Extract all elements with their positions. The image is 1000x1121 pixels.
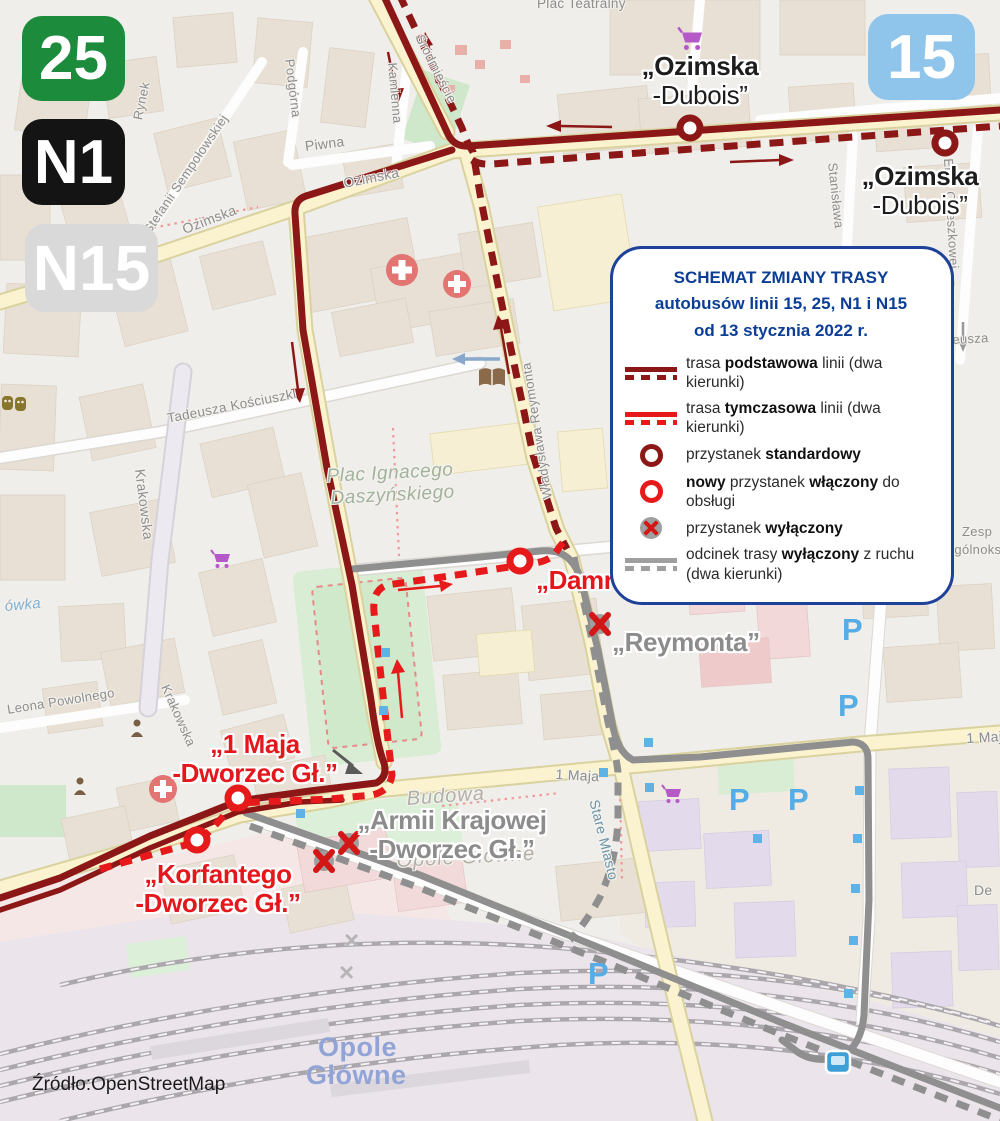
street-label: Główne xyxy=(306,1060,407,1091)
legend-item-temporary-route: trasa tymczasowa linii (dwa kierunki) xyxy=(625,399,937,438)
parking-icon: P xyxy=(838,688,859,724)
street-label: Plac Teatralny xyxy=(537,0,626,11)
street-label: 1 Maja xyxy=(555,766,600,784)
legend-item-excluded-section: odcinek trasy wyłączony z ruchu(dwa kier… xyxy=(625,545,937,584)
street-label: ówka xyxy=(4,595,42,615)
legend-item-standard-stop: przystanek standardowy xyxy=(625,444,937,467)
library-book-icon xyxy=(479,368,505,386)
parking-icon: P xyxy=(842,612,863,648)
excluded-section-line-icon xyxy=(625,558,677,571)
closed-stop-icon xyxy=(625,517,677,539)
stop-label-ozimska-dubois-right: „Ozimska -Dubois” xyxy=(820,162,1000,219)
source-credit: Źródło:OpenStreetMap xyxy=(32,1074,225,1096)
line-badge-n1: N1 xyxy=(22,119,125,205)
map-schematic: Plac TeatralnyRynekStefanii Sempołowskie… xyxy=(0,0,1000,1121)
parking-icon: P xyxy=(588,956,609,992)
street-label: Zesp xyxy=(962,524,992,539)
stop-label-ozimska-dubois-top: „Ozimska -Dubois” xyxy=(600,52,800,109)
line-badge-15: 15 xyxy=(868,14,975,100)
line-badge-n15: N15 xyxy=(25,224,158,312)
stop-label-1maja-dworzec: „1 Maja -Dworzec Gł.” xyxy=(145,730,365,787)
line-badge-25: 25 xyxy=(22,16,125,101)
stop-label-korfantego-dworzec: „Korfantego -Dworzec Gł.” xyxy=(108,860,328,917)
crossing-icon: × xyxy=(344,925,359,956)
crossing-icon: × xyxy=(339,957,354,988)
new-stop-icon xyxy=(625,480,677,503)
stop-label-armii-krajowej-dworzec: „Armii Krajowej -Dworzec Gł.” xyxy=(342,806,562,863)
legend-item-closed-stop: przystanek wyłączony xyxy=(625,517,937,539)
street-label: 1 Maja xyxy=(966,728,1000,746)
street-label: eusza xyxy=(952,330,989,347)
legend-panel: SCHEMAT ZMIANY TRASY autobusów linii 15,… xyxy=(610,246,954,605)
legend-item-basic-route: trasa podstawowa linii (dwa kierunki) xyxy=(625,354,937,393)
stop-label-reymonta: „Reymonta” xyxy=(612,628,832,657)
street-label: De xyxy=(974,882,993,898)
street-label: Opole xyxy=(318,1032,397,1063)
parking-icon: P xyxy=(788,782,809,818)
legend-item-new-stop: nowy przystanek włączony do obsługi xyxy=(625,473,937,512)
parking-icon: P xyxy=(729,782,750,818)
temporary-route-line-icon xyxy=(625,412,677,425)
standard-stop-icon xyxy=(625,444,677,467)
legend-title: SCHEMAT ZMIANY TRASY autobusów linii 15,… xyxy=(625,265,937,344)
station-entrance-icon xyxy=(826,1051,850,1073)
basic-route-line-icon xyxy=(625,367,677,380)
